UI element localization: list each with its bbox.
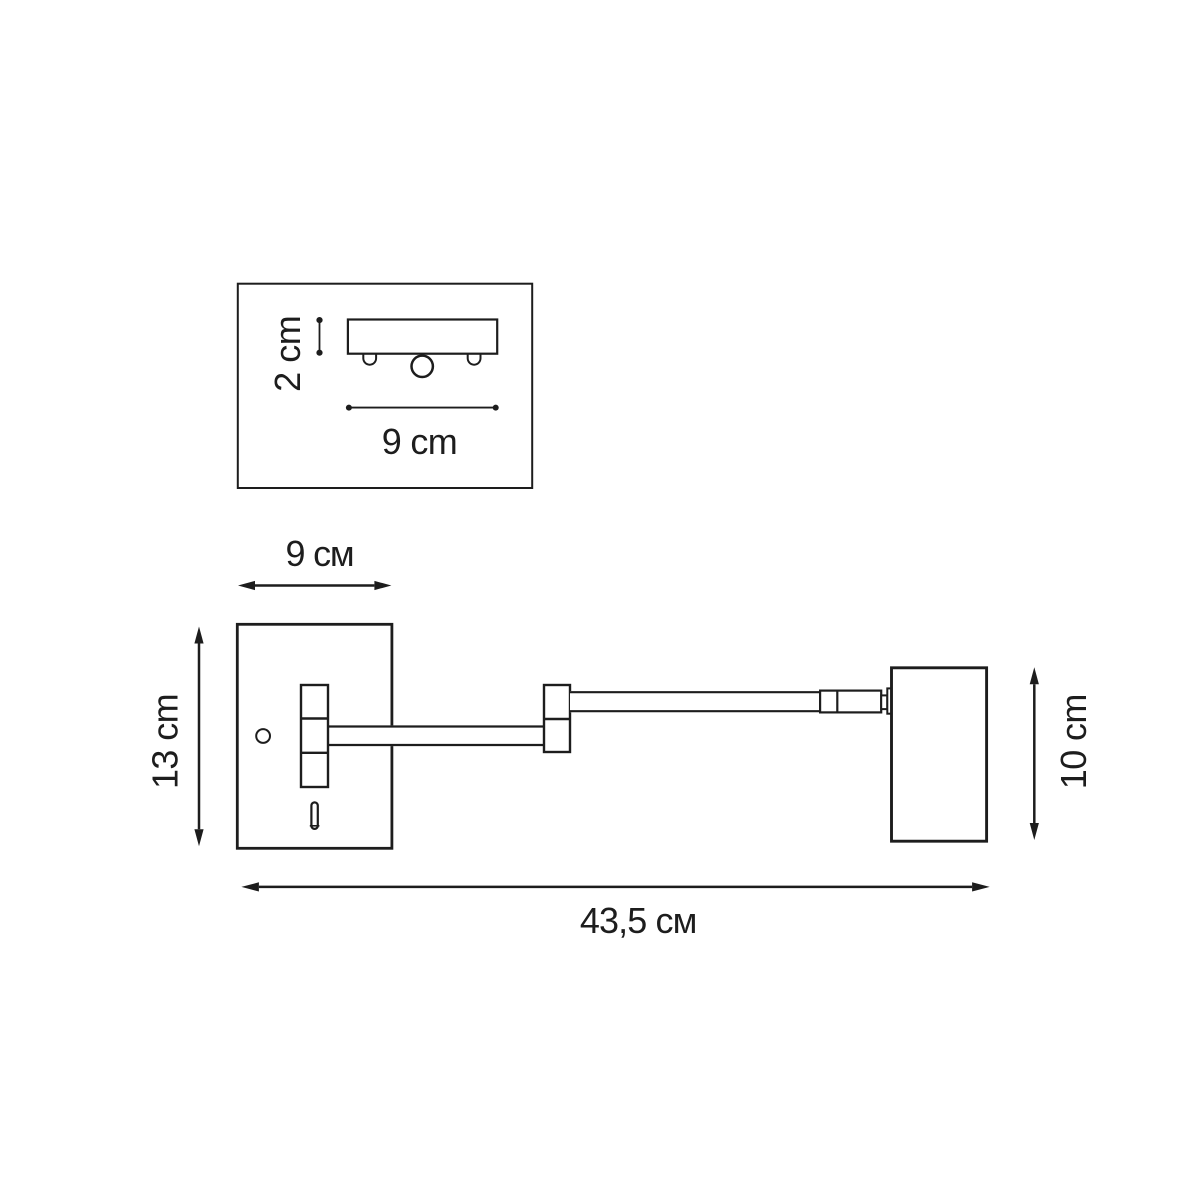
svg-text:9 см: 9 см: [286, 533, 354, 574]
svg-text:13 cm: 13 cm: [145, 694, 186, 789]
svg-text:43,5 см: 43,5 см: [580, 900, 697, 941]
svg-text:9 cm: 9 cm: [382, 421, 457, 462]
svg-text:10 cm: 10 cm: [1053, 694, 1094, 789]
svg-text:2 cm: 2 cm: [267, 316, 308, 392]
